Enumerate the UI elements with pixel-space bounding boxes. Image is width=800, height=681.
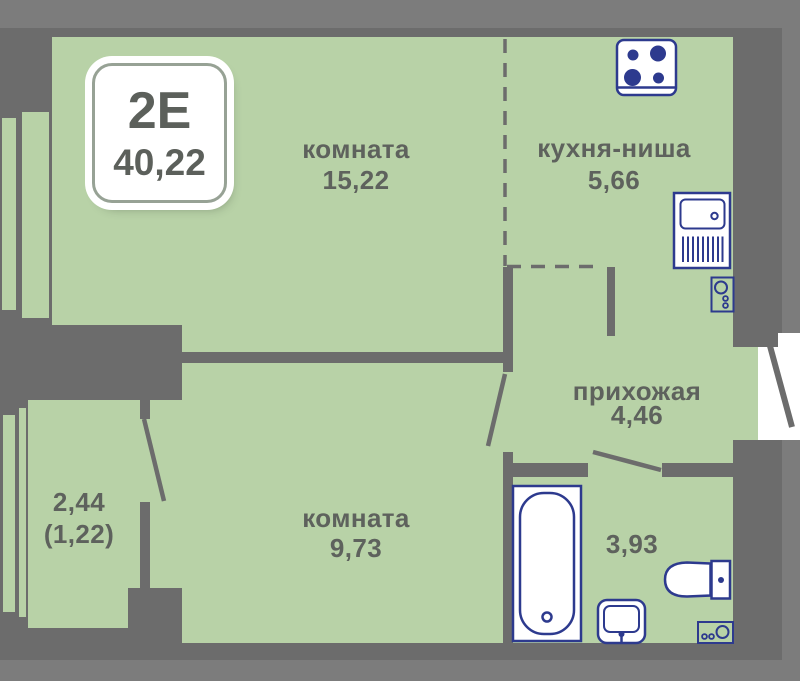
- apartment-total-area: 40,22: [113, 144, 206, 181]
- apartment-type: 2Е: [128, 85, 192, 137]
- living-room-label: комната: [302, 136, 410, 162]
- entrance-door: [770, 346, 792, 427]
- living-room-area: 15,22: [322, 167, 389, 193]
- apartment-type-badge: 2Е 40,22: [92, 63, 227, 203]
- bathtub-icon: [513, 486, 581, 641]
- balcony-area-reduced: (1,22): [44, 521, 114, 547]
- bathroom-door: [593, 452, 661, 470]
- bedroom-label: комната: [302, 505, 410, 531]
- bedroom-area: 9,73: [330, 535, 382, 561]
- stove-icon: [617, 40, 676, 95]
- washing-machine-icon: [698, 622, 733, 643]
- kitchen-area: 5,66: [588, 167, 640, 193]
- floor-plan: 2Е 40,22 комната 15,22 кухня-ниша 5,66 п…: [0, 0, 800, 681]
- balcony-door: [144, 419, 164, 501]
- kitchen-sink-icon: [674, 193, 730, 268]
- water-heater-icon: [712, 278, 734, 312]
- bathroom-area: 3,93: [606, 531, 658, 557]
- kitchen-label: кухня-ниша: [537, 135, 691, 161]
- hallway-area: 4,46: [611, 402, 663, 428]
- washbasin-icon: [598, 600, 645, 644]
- balcony-area-full: 2,44: [53, 489, 105, 515]
- toilet-icon: [665, 561, 730, 599]
- bedroom-door: [488, 374, 505, 446]
